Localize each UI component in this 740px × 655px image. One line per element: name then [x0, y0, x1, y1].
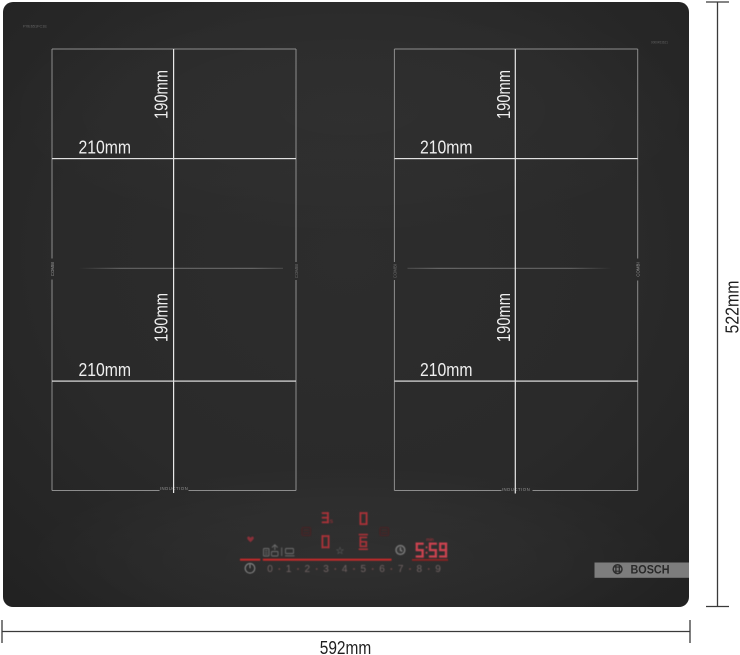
svg-text:2: 2 [305, 564, 311, 575]
svg-text:7: 7 [398, 564, 404, 575]
svg-text:BOSCH: BOSCH [631, 563, 670, 577]
svg-text:min: min [426, 537, 434, 542]
svg-text:5: 5 [361, 564, 367, 575]
svg-text:210mm: 210mm [420, 359, 473, 380]
svg-text:592mm: 592mm [320, 637, 372, 655]
svg-text:☆: ☆ [336, 546, 345, 557]
svg-text:8: 8 [417, 564, 423, 575]
svg-text:COMBI: COMBI [294, 264, 299, 278]
svg-text:0: 0 [267, 564, 273, 575]
svg-text:210mm: 210mm [420, 137, 473, 158]
svg-text:9: 9 [435, 564, 441, 575]
svg-text:COMBI: COMBI [636, 262, 641, 276]
svg-text:4: 4 [342, 564, 348, 575]
svg-text:190mm: 190mm [151, 293, 172, 342]
svg-text:522mm: 522mm [722, 281, 740, 334]
svg-text:6: 6 [379, 564, 385, 575]
svg-text:9000453621: 9000453621 [651, 41, 668, 45]
svg-text:PXE651FC1E: PXE651FC1E [23, 25, 48, 29]
svg-text:210mm: 210mm [79, 359, 132, 380]
svg-text:COMBI: COMBI [50, 262, 55, 276]
svg-text:COMBI: COMBI [392, 264, 397, 278]
svg-text:190mm: 190mm [151, 70, 172, 119]
svg-text:190mm: 190mm [493, 293, 514, 342]
svg-text:190mm: 190mm [493, 70, 514, 119]
svg-text:210mm: 210mm [79, 137, 132, 158]
svg-text:3: 3 [323, 564, 329, 575]
svg-text:INDUCTION: INDUCTION [502, 487, 530, 492]
svg-text:1: 1 [286, 564, 292, 575]
